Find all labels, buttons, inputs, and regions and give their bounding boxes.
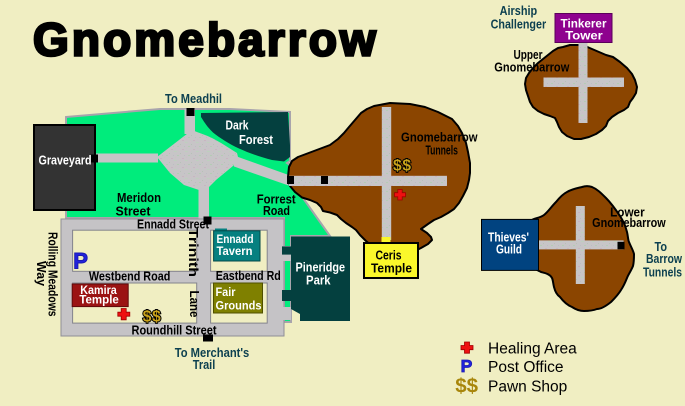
svg-text:Gnomebarrow: Gnomebarrow bbox=[592, 216, 666, 230]
svg-text:Trinith: Trinith bbox=[186, 228, 200, 277]
svg-text:Barrow: Barrow bbox=[646, 252, 682, 266]
svg-text:Gnomebarrow: Gnomebarrow bbox=[33, 14, 379, 66]
svg-text:To Meadhil: To Meadhil bbox=[165, 92, 222, 106]
svg-text:Fair: Fair bbox=[216, 285, 236, 299]
svg-text:Road: Road bbox=[263, 204, 290, 218]
svg-text:Airship: Airship bbox=[500, 4, 538, 18]
svg-text:Eastbend Rd: Eastbend Rd bbox=[216, 268, 281, 283]
svg-text:Guild: Guild bbox=[496, 243, 522, 257]
svg-text:Park: Park bbox=[306, 273, 331, 287]
svg-text:Gnomebarrow: Gnomebarrow bbox=[494, 60, 569, 74]
svg-text:Gnomebarrow: Gnomebarrow bbox=[401, 130, 478, 144]
svg-text:Temple: Temple bbox=[79, 293, 119, 307]
svg-text:Westbend Road: Westbend Road bbox=[89, 269, 171, 284]
svg-text:Post Office: Post Office bbox=[488, 359, 564, 376]
svg-text:Tower: Tower bbox=[565, 29, 603, 43]
svg-text:Trail: Trail bbox=[193, 358, 216, 372]
svg-text:Grounds: Grounds bbox=[216, 298, 262, 312]
svg-text:Tunnels: Tunnels bbox=[643, 265, 682, 279]
svg-text:Healing Area: Healing Area bbox=[488, 341, 577, 358]
svg-text:Dark: Dark bbox=[226, 119, 250, 133]
svg-text:Pawn Shop: Pawn Shop bbox=[488, 379, 567, 396]
svg-text:Graveyard: Graveyard bbox=[39, 154, 92, 168]
svg-text:Way: Way bbox=[34, 261, 48, 286]
svg-text:Lane: Lane bbox=[187, 291, 201, 318]
svg-text:P: P bbox=[461, 356, 473, 376]
svg-text:Pineridge: Pineridge bbox=[296, 260, 346, 274]
svg-text:$$: $$ bbox=[393, 157, 412, 174]
svg-text:$$: $$ bbox=[455, 374, 478, 397]
svg-text:Challenger: Challenger bbox=[491, 18, 547, 32]
svg-text:Roundhill Street: Roundhill Street bbox=[132, 323, 218, 338]
svg-text:P: P bbox=[73, 248, 88, 273]
svg-text:Forest: Forest bbox=[239, 133, 274, 147]
svg-text:Temple: Temple bbox=[371, 261, 412, 275]
svg-text:Tunnels: Tunnels bbox=[425, 144, 458, 158]
svg-text:Meridon: Meridon bbox=[117, 191, 161, 205]
svg-text:Tavern: Tavern bbox=[217, 244, 253, 258]
